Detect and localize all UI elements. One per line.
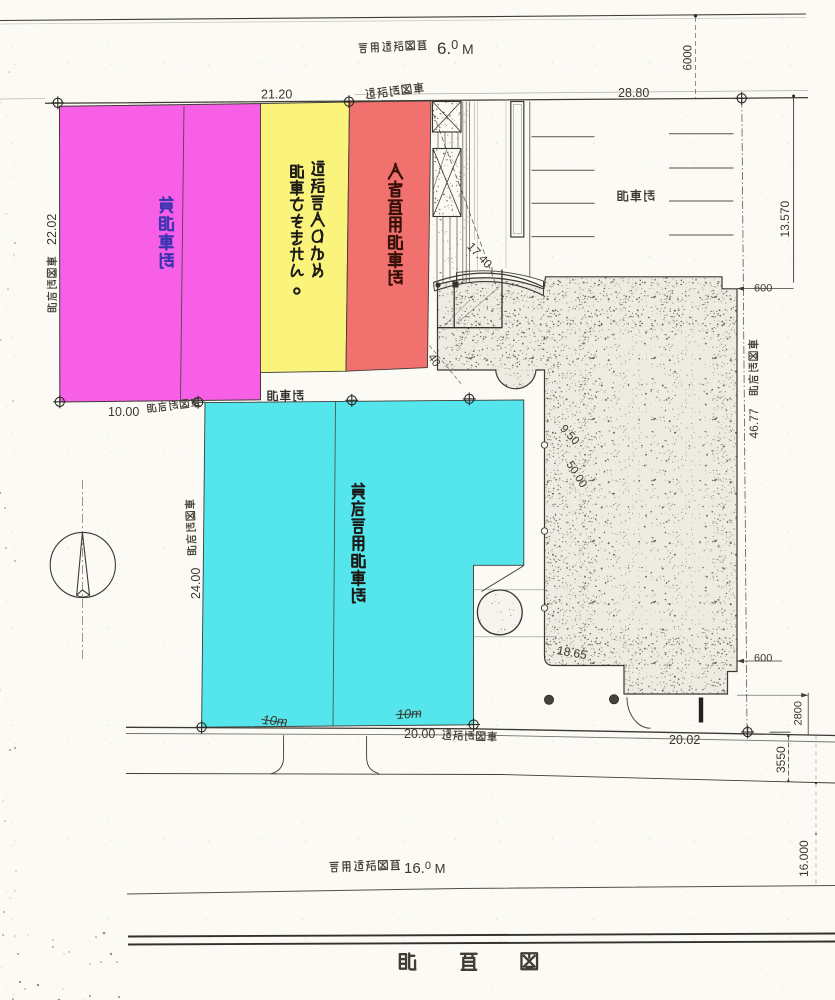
svg-text:21.20: 21.20 — [261, 88, 292, 102]
svg-text:6000: 6000 — [683, 45, 695, 71]
svg-text:20.00: 20.00 — [404, 727, 435, 741]
svg-text:3550: 3550 — [774, 746, 788, 773]
svg-text:600: 600 — [754, 653, 772, 665]
svg-text:16.000: 16.000 — [797, 840, 811, 877]
svg-text:24.00: 24.00 — [189, 568, 203, 599]
svg-text:16.0 M: 16.0 M — [404, 860, 445, 877]
svg-text:20.02: 20.02 — [669, 733, 700, 747]
svg-text:10.00: 10.00 — [108, 405, 139, 419]
svg-text:22.02: 22.02 — [45, 214, 59, 245]
svg-text:2800: 2800 — [793, 701, 805, 725]
svg-text:10m: 10m — [262, 712, 289, 729]
svg-text:46.77: 46.77 — [747, 408, 761, 438]
svg-text:600: 600 — [754, 283, 772, 295]
svg-text:13.570: 13.570 — [778, 200, 792, 237]
svg-text:28.80: 28.80 — [618, 86, 649, 100]
